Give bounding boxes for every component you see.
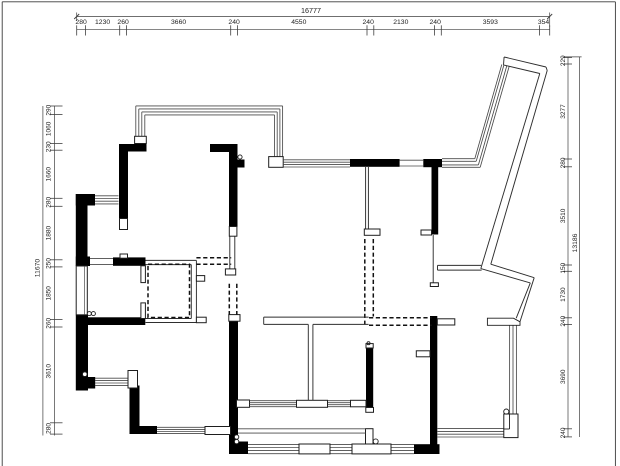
svg-text:3690: 3690 <box>560 369 567 384</box>
svg-text:3277: 3277 <box>560 104 567 119</box>
svg-text:280: 280 <box>75 19 87 26</box>
svg-text:2130: 2130 <box>393 19 408 26</box>
svg-text:230: 230 <box>46 141 53 152</box>
svg-text:1060: 1060 <box>46 121 53 136</box>
svg-text:229: 229 <box>560 55 567 66</box>
svg-text:3593: 3593 <box>483 19 498 26</box>
svg-text:1230: 1230 <box>95 19 110 26</box>
svg-text:240: 240 <box>228 19 240 26</box>
svg-text:260: 260 <box>117 19 129 26</box>
svg-text:240: 240 <box>560 315 567 326</box>
svg-text:16777: 16777 <box>301 6 321 15</box>
svg-text:4550: 4550 <box>291 19 306 26</box>
svg-text:354: 354 <box>538 19 550 26</box>
svg-text:280: 280 <box>46 196 53 207</box>
svg-text:260: 260 <box>46 317 53 328</box>
svg-text:250: 250 <box>46 258 53 269</box>
svg-text:240: 240 <box>560 427 567 438</box>
svg-text:150: 150 <box>560 262 567 273</box>
svg-text:240: 240 <box>430 19 442 26</box>
svg-text:1730: 1730 <box>560 287 567 302</box>
svg-text:3510: 3510 <box>560 208 567 223</box>
svg-text:280: 280 <box>560 157 567 168</box>
svg-text:3660: 3660 <box>171 19 186 26</box>
svg-text:280: 280 <box>46 423 53 434</box>
svg-text:240: 240 <box>363 19 375 26</box>
svg-text:1850: 1850 <box>46 286 53 301</box>
svg-text:3610: 3610 <box>46 364 53 379</box>
svg-text:1660: 1660 <box>46 167 53 182</box>
svg-text:290: 290 <box>46 104 53 115</box>
svg-text:11670: 11670 <box>34 259 41 278</box>
svg-text:13186: 13186 <box>572 233 579 252</box>
svg-text:1880: 1880 <box>46 225 53 240</box>
